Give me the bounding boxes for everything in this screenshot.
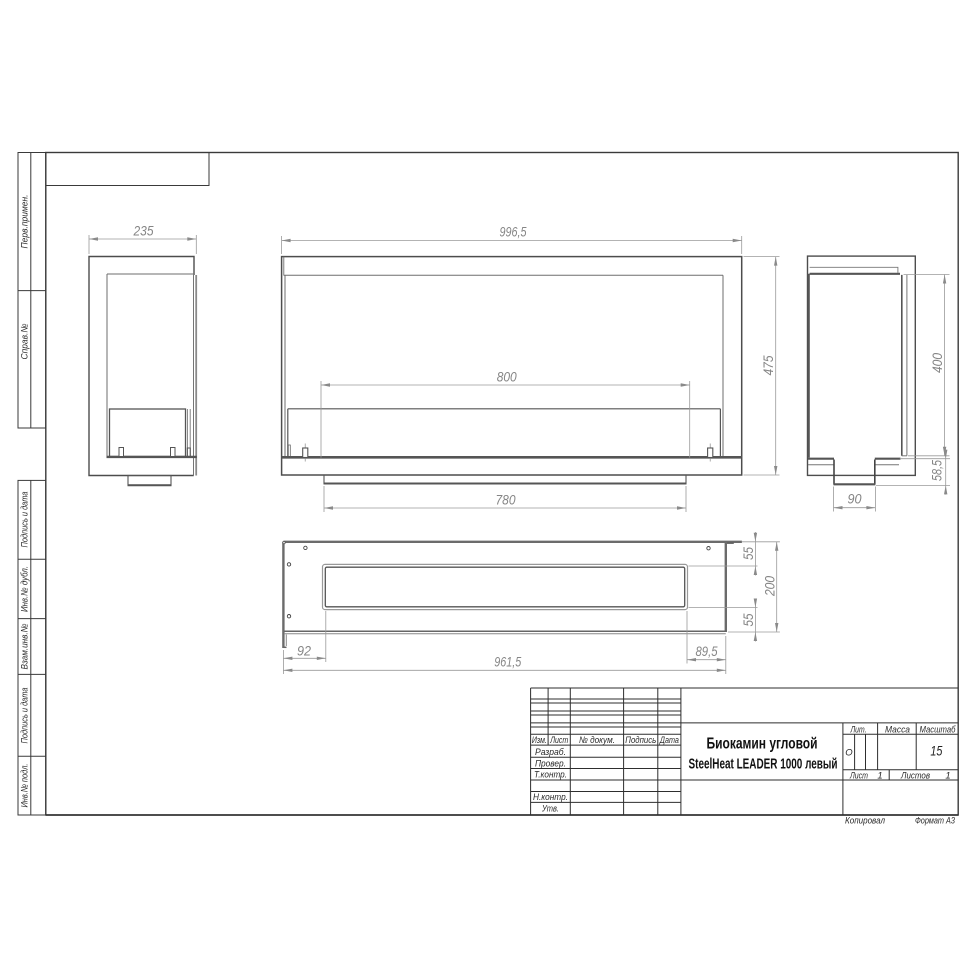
- svg-text:Листов: Листов: [900, 771, 930, 782]
- svg-text:Масштаб: Масштаб: [920, 724, 957, 735]
- svg-text:92: 92: [297, 643, 311, 659]
- svg-text:89,5: 89,5: [696, 643, 718, 659]
- svg-text:SteelHeat LEADER 1000 левый: SteelHeat LEADER 1000 левый: [689, 757, 838, 773]
- svg-text:Провер.: Провер.: [535, 758, 566, 769]
- svg-text:Подпись: Подпись: [625, 735, 656, 746]
- svg-text:780: 780: [496, 492, 516, 508]
- svg-text:Н.контр.: Н.контр.: [533, 792, 568, 803]
- svg-text:Т.контр.: Т.контр.: [534, 770, 567, 781]
- svg-text:№ докум.: № докум.: [579, 735, 615, 746]
- svg-text:55: 55: [740, 613, 756, 626]
- svg-text:Инв.№ подл.: Инв.№ подл.: [20, 764, 31, 808]
- svg-text:400: 400: [929, 353, 945, 373]
- svg-text:Лит.: Лит.: [850, 724, 867, 735]
- svg-text:200: 200: [761, 576, 777, 597]
- svg-text:Подпись и дата: Подпись и дата: [20, 688, 31, 744]
- svg-text:Подпись и дата: Подпись и дата: [20, 492, 31, 548]
- svg-text:Перв.примен.: Перв.примен.: [20, 195, 31, 249]
- svg-text:Справ.№: Справ.№: [20, 324, 31, 360]
- svg-text:55: 55: [740, 547, 756, 560]
- svg-text:90: 90: [848, 491, 862, 507]
- svg-text:961,5: 961,5: [494, 654, 521, 670]
- svg-text:Масса: Масса: [885, 724, 910, 735]
- svg-text:235: 235: [133, 223, 154, 239]
- svg-text:Изм.: Изм.: [532, 735, 547, 746]
- svg-text:15: 15: [930, 743, 942, 759]
- svg-text:О: О: [845, 748, 853, 759]
- svg-text:475: 475: [760, 355, 776, 375]
- svg-text:Утв.: Утв.: [541, 804, 559, 815]
- svg-text:Взам.инв.№: Взам.инв.№: [20, 624, 31, 670]
- svg-text:Формат А3: Формат А3: [915, 816, 956, 827]
- svg-text:Дата: Дата: [659, 735, 679, 746]
- svg-text:Разраб.: Разраб.: [535, 747, 566, 758]
- svg-text:Инв.№ дубл.: Инв.№ дубл.: [20, 566, 31, 612]
- svg-text:Лист: Лист: [549, 735, 568, 746]
- svg-text:Копировал: Копировал: [845, 816, 886, 827]
- svg-text:Лист: Лист: [849, 771, 868, 782]
- svg-text:58,5: 58,5: [929, 460, 945, 481]
- svg-text:996,5: 996,5: [500, 224, 527, 240]
- svg-text:Биокамин угловой: Биокамин угловой: [707, 736, 818, 753]
- svg-text:800: 800: [497, 369, 517, 385]
- svg-text:1: 1: [877, 771, 882, 782]
- svg-text:1: 1: [945, 771, 950, 782]
